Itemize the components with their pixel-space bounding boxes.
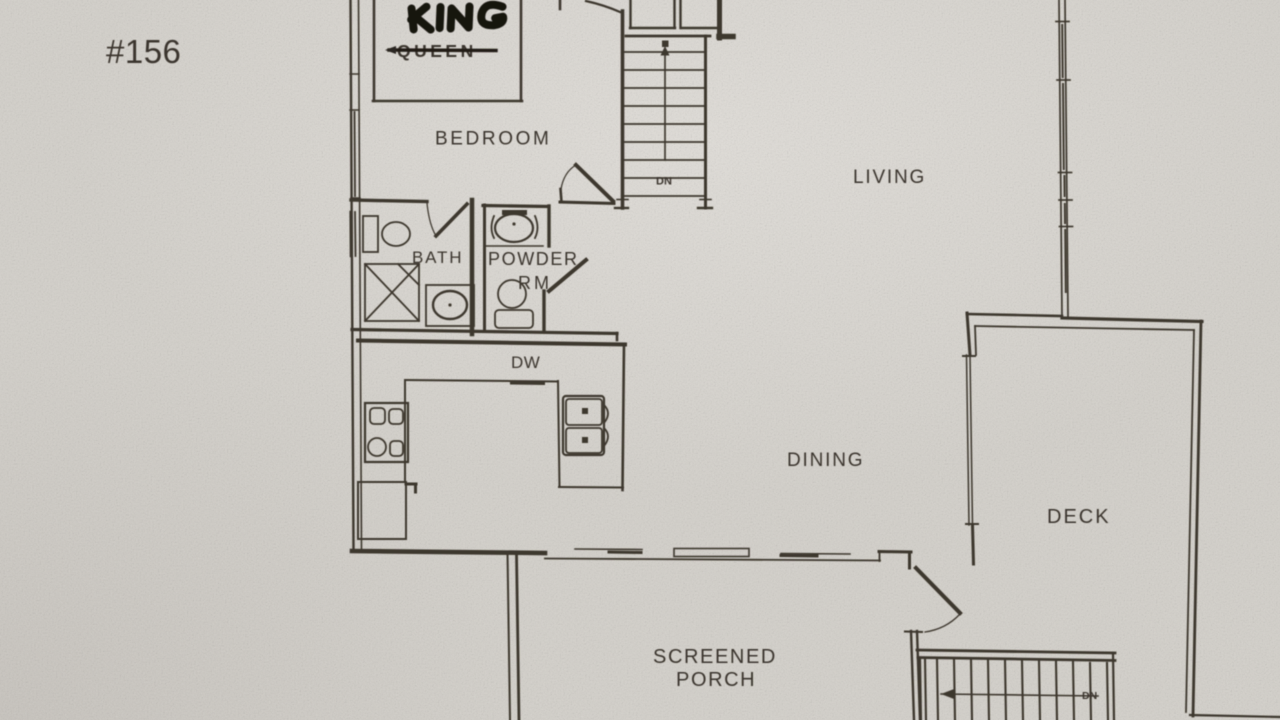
svg-text:PORCH: PORCH <box>676 669 756 691</box>
svg-text:DN: DN <box>656 176 672 188</box>
svg-text:DECK: DECK <box>1047 506 1111 528</box>
svg-text:LIVING: LIVING <box>853 167 926 188</box>
svg-text:DN: DN <box>1082 690 1097 702</box>
svg-text:BEDROOM: BEDROOM <box>435 129 551 150</box>
svg-text:RM: RM <box>518 273 552 293</box>
svg-text:DW: DW <box>511 353 540 372</box>
svg-text:POWDER: POWDER <box>488 249 579 269</box>
svg-text:SCREENED: SCREENED <box>653 646 777 668</box>
svg-text:#156: #156 <box>106 33 181 70</box>
svg-text:DINING: DINING <box>787 450 864 471</box>
